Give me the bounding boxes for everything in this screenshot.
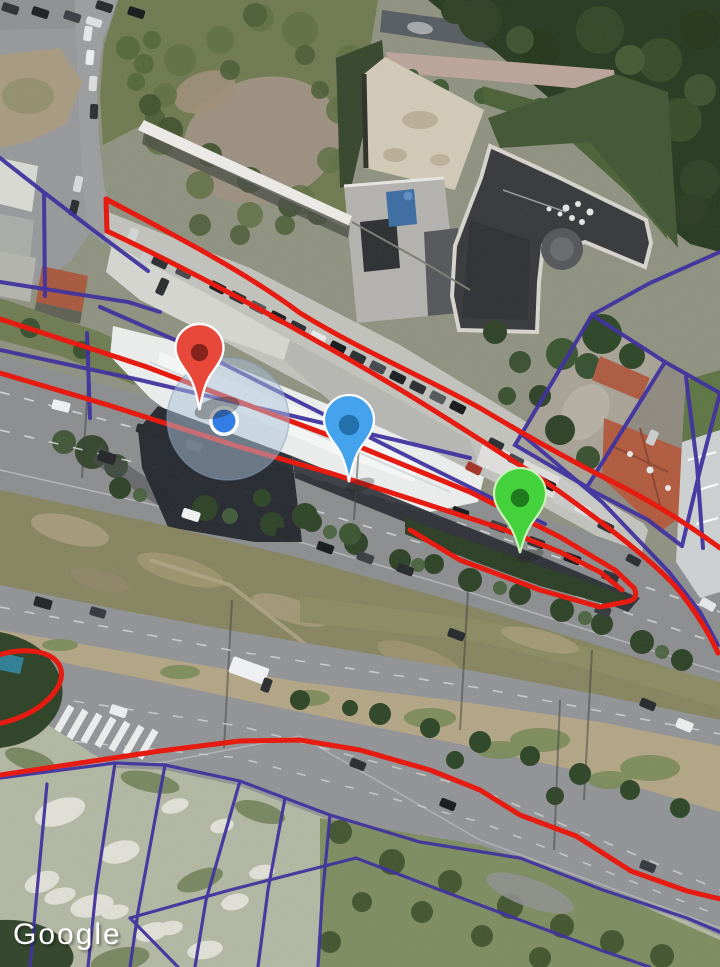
svg-text:Google: Google: [13, 918, 122, 951]
